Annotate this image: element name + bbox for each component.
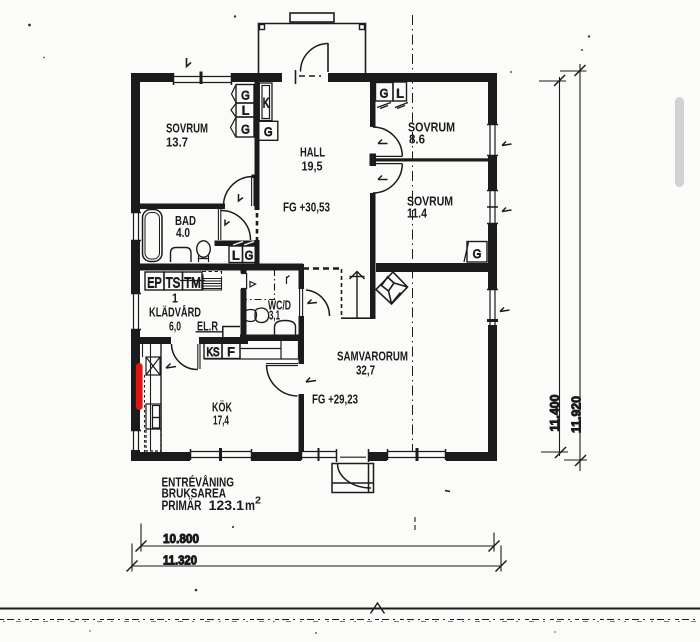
svg-text:10.800: 10.800 bbox=[163, 532, 199, 546]
svg-text:KS: KS bbox=[207, 345, 220, 359]
svg-text:32,7: 32,7 bbox=[356, 363, 375, 378]
svg-text:TM: TM bbox=[184, 276, 201, 292]
svg-text:TS: TS bbox=[166, 276, 181, 292]
svg-text:G: G bbox=[241, 123, 250, 137]
svg-text:G: G bbox=[264, 125, 273, 139]
svg-text:SAMVARORUM: SAMVARORUM bbox=[337, 349, 408, 364]
svg-text:L: L bbox=[396, 87, 404, 101]
svg-text:EP: EP bbox=[147, 276, 162, 292]
svg-text:FG +29,23: FG +29,23 bbox=[312, 392, 358, 407]
svg-text:6,0: 6,0 bbox=[169, 319, 181, 334]
svg-text:F: F bbox=[227, 345, 235, 359]
svg-text:1: 1 bbox=[172, 291, 178, 306]
svg-text:G: G bbox=[473, 247, 482, 261]
svg-text:L: L bbox=[242, 104, 250, 118]
svg-text:11.920: 11.920 bbox=[569, 396, 584, 433]
svg-text:PRIMÄR: PRIMÄR bbox=[162, 498, 202, 513]
svg-text:4.0: 4.0 bbox=[176, 225, 190, 240]
svg-text:13.7: 13.7 bbox=[166, 135, 188, 150]
svg-text:K: K bbox=[263, 95, 270, 111]
svg-text:11.4: 11.4 bbox=[407, 206, 428, 221]
svg-text:19,5: 19,5 bbox=[302, 159, 323, 174]
svg-text:L: L bbox=[232, 249, 240, 263]
svg-text:2: 2 bbox=[255, 495, 261, 507]
svg-text:m: m bbox=[245, 497, 255, 513]
svg-text:EL.R: EL.R bbox=[197, 320, 218, 334]
svg-text:3,1: 3,1 bbox=[269, 309, 280, 323]
svg-text:FG +30,53: FG +30,53 bbox=[283, 200, 330, 215]
svg-text:G: G bbox=[241, 89, 250, 103]
svg-text:11.320: 11.320 bbox=[163, 554, 197, 568]
svg-text:8.6: 8.6 bbox=[409, 132, 425, 147]
svg-text:123.1: 123.1 bbox=[209, 497, 245, 513]
svg-text:G: G bbox=[380, 87, 389, 101]
svg-text:HALL: HALL bbox=[300, 145, 325, 160]
svg-text:SOVRUM: SOVRUM bbox=[166, 121, 208, 136]
svg-text:11.400: 11.400 bbox=[547, 395, 562, 432]
svg-text:17,4: 17,4 bbox=[213, 413, 229, 428]
svg-text:KLÄDVÅRD: KLÄDVÅRD bbox=[149, 305, 201, 320]
svg-text:G: G bbox=[245, 249, 254, 263]
